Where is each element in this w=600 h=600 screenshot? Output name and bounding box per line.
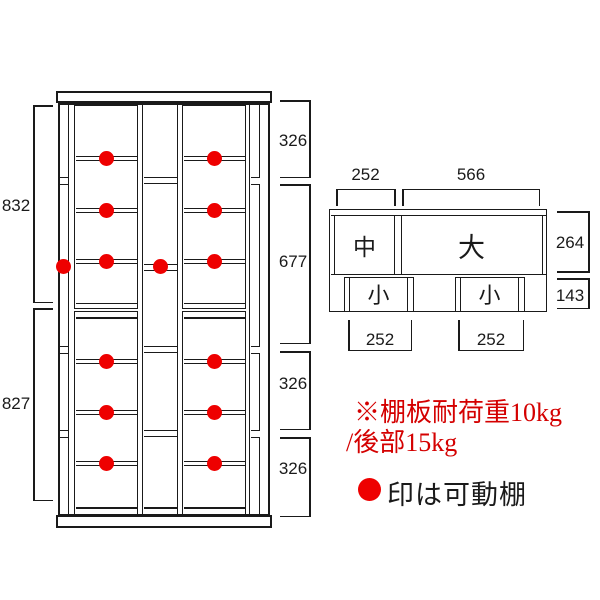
dimension-tick (557, 308, 590, 310)
dimension-line (458, 350, 524, 352)
bottom-rail-line (144, 507, 177, 509)
movable-shelf-dot (56, 259, 71, 274)
dimension-line (402, 189, 540, 191)
dim-label-252-bottom-left: 252 (348, 331, 412, 348)
dim-label-326-top: 326 (276, 132, 310, 149)
dim-label-827: 827 (0, 395, 32, 412)
movable-shelf-dot (207, 405, 222, 420)
dimension-tick (280, 429, 311, 431)
movable-shelf-dot (153, 259, 168, 274)
dimension-line (336, 189, 396, 191)
load-note-line1: ※棚板耐荷重10kg (354, 399, 562, 428)
dim-label-326-bottom: 326 (276, 460, 310, 477)
dimension-tick (33, 308, 53, 310)
dim-label-252-bottom-right: 252 (458, 331, 524, 348)
dimension-line (348, 350, 412, 352)
compartment-label-medium: 中 (335, 216, 394, 274)
frame-line (68, 105, 69, 515)
center-column (142, 105, 178, 515)
center-rail (144, 177, 177, 184)
movable-shelf-dot (207, 151, 222, 166)
dimension-tick (280, 184, 311, 186)
cabinet-top-cap (56, 91, 272, 103)
fixed-rail-line (76, 317, 137, 319)
movable-shelf-dot (99, 203, 114, 218)
dim-label-252-top: 252 (336, 166, 395, 183)
movable-shelf-dot (99, 254, 114, 269)
movable-shelf-dot (99, 456, 114, 471)
dim-label-566: 566 (402, 166, 540, 183)
dim-label-832: 832 (0, 197, 32, 214)
dimension-line (33, 308, 35, 501)
fixed-rail-line (76, 303, 137, 305)
legend-text: 印は可動棚 (387, 473, 527, 512)
dimension-tick (280, 100, 311, 102)
bottom-rail-line (76, 507, 137, 509)
dim-label-264: 264 (553, 234, 587, 251)
dimension-tick (280, 437, 311, 439)
dimension-tick (557, 211, 590, 213)
side-notch (60, 430, 68, 438)
dimension-line (33, 105, 35, 303)
dimension-tick (394, 189, 396, 206)
side-notch (60, 346, 68, 354)
load-note-line2: /後部15kg (346, 429, 457, 458)
dimension-tick (557, 271, 590, 273)
dim-label-143: 143 (553, 287, 587, 304)
side-notch (251, 177, 260, 185)
compartment-label-large: 大 (402, 216, 541, 274)
dimension-line (588, 278, 590, 309)
section-divider (394, 216, 402, 274)
dimension-tick (539, 189, 541, 206)
cabinet-base (56, 515, 272, 528)
fixed-rail-line (184, 317, 245, 319)
section-inner-line (542, 216, 543, 274)
dimension-tick (33, 500, 53, 502)
dimension-tick (402, 189, 404, 206)
dimension-tick (557, 278, 590, 280)
movable-shelf-dot (99, 151, 114, 166)
movable-shelf-dot (99, 405, 114, 420)
side-notch (251, 430, 260, 438)
dimension-tick (33, 105, 53, 107)
center-rail (144, 430, 177, 437)
legend-dot-icon (358, 478, 381, 501)
dimension-tick (33, 302, 53, 304)
dimension-tick (280, 516, 311, 518)
fixed-rail-line (184, 303, 245, 305)
movable-shelf-dot (207, 354, 222, 369)
movable-shelf-dot (99, 354, 114, 369)
center-rail (144, 346, 177, 353)
dimension-line (588, 211, 590, 273)
bottom-rail-line (184, 507, 245, 509)
dimension-tick (336, 189, 338, 206)
movable-shelf-dot (207, 254, 222, 269)
dim-label-677: 677 (276, 253, 310, 270)
movable-shelf-dot (207, 456, 222, 471)
dimension-tick (280, 351, 311, 353)
frame-line (259, 105, 260, 515)
side-notch (60, 177, 68, 185)
dimension-tick (280, 177, 311, 179)
compartment-label-small-right: 小 (455, 278, 525, 309)
side-notch (251, 346, 260, 354)
dimension-line (309, 437, 311, 517)
compartment-label-small-left: 小 (344, 278, 414, 309)
movable-shelf-dot (207, 203, 222, 218)
dimension-tick (280, 343, 311, 345)
frame-line (249, 105, 250, 515)
furniture-dimension-diagram: 832 827 326 677 326 326 中 大 (0, 0, 600, 600)
dim-label-326-mid: 326 (276, 375, 310, 392)
